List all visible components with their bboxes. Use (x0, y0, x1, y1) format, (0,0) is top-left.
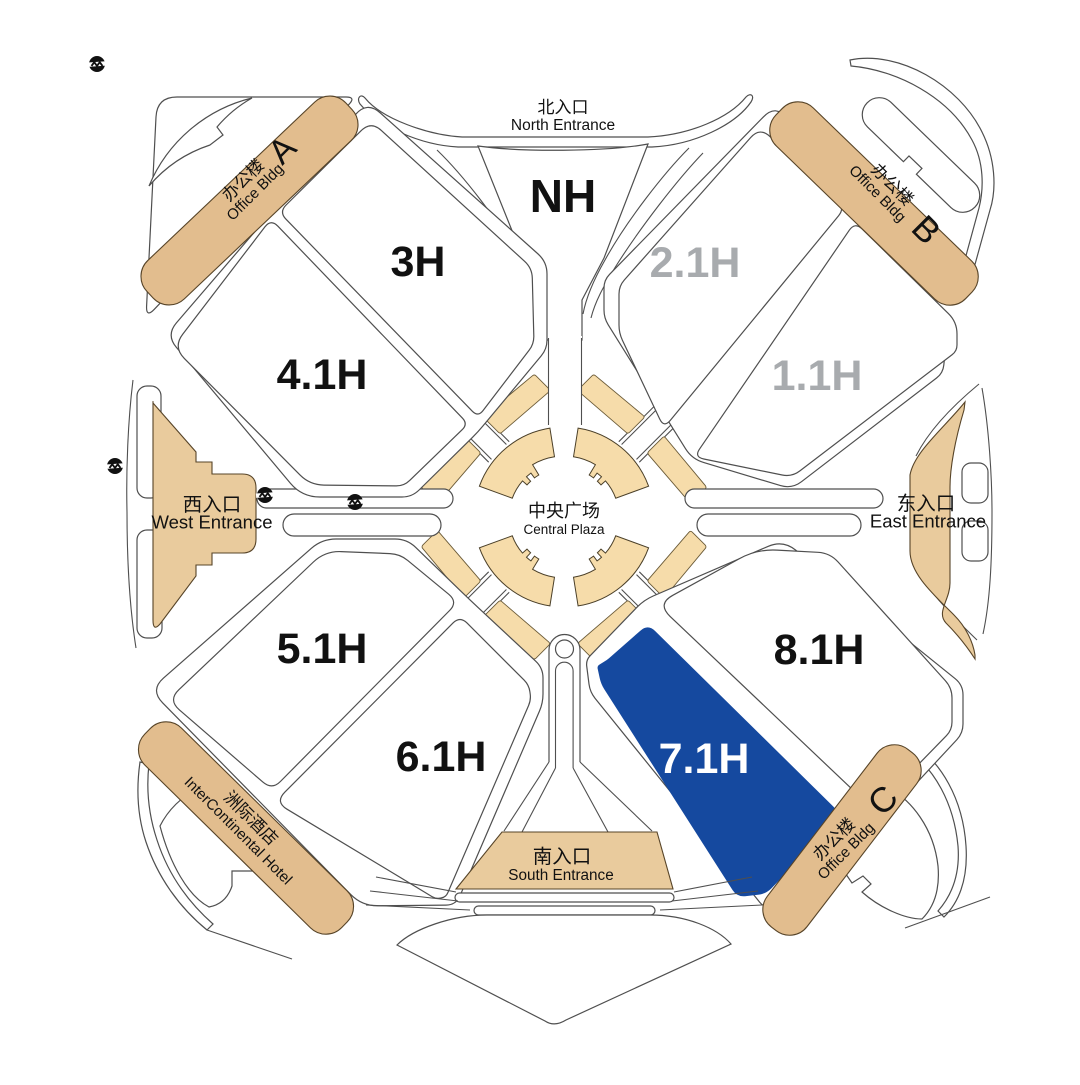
svg-text:East Entrance: East Entrance (870, 511, 986, 532)
svg-text:7.1H: 7.1H (659, 735, 750, 783)
svg-text:1.1H: 1.1H (772, 352, 863, 400)
svg-text:3H: 3H (391, 238, 446, 286)
svg-text:NH: NH (530, 170, 596, 222)
svg-text:8.1H: 8.1H (774, 626, 865, 674)
svg-text:2.1H: 2.1H (650, 239, 741, 287)
svg-text:Central Plaza: Central Plaza (523, 522, 605, 537)
svg-text:5.1H: 5.1H (277, 625, 368, 673)
svg-text:4.1H: 4.1H (277, 351, 368, 399)
svg-text:北入口: 北入口 (538, 98, 589, 117)
svg-text:6.1H: 6.1H (396, 733, 487, 781)
svg-text:West Entrance: West Entrance (152, 512, 273, 533)
svg-text:中央广场: 中央广场 (528, 501, 600, 521)
svg-text:South Entrance: South Entrance (508, 867, 613, 884)
svg-text:North Entrance: North Entrance (511, 117, 615, 134)
svg-text:南入口: 南入口 (533, 846, 592, 868)
